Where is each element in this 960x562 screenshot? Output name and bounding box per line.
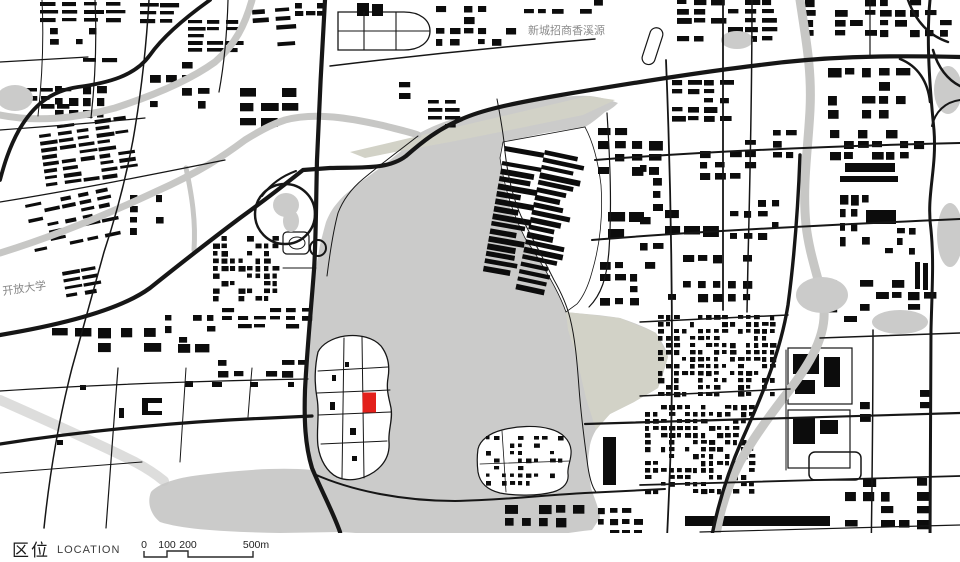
- building: [649, 141, 663, 151]
- building: [661, 405, 667, 409]
- building: [694, 18, 705, 23]
- building: [762, 350, 767, 354]
- building: [273, 281, 277, 286]
- building: [717, 426, 721, 430]
- building: [725, 426, 729, 430]
- building: [844, 152, 853, 159]
- building: [701, 454, 705, 458]
- building: [622, 508, 631, 513]
- building: [653, 461, 658, 465]
- building: [880, 30, 888, 37]
- building: [910, 0, 921, 5]
- building: [714, 329, 719, 333]
- building: [494, 466, 499, 469]
- building: [273, 236, 279, 241]
- building: [428, 116, 442, 120]
- building: [745, 9, 756, 14]
- building: [754, 336, 758, 341]
- building: [464, 6, 472, 13]
- building: [239, 259, 243, 263]
- building: [142, 398, 162, 403]
- building: [645, 412, 650, 417]
- building: [669, 426, 675, 431]
- building: [674, 343, 680, 347]
- building: [661, 447, 665, 452]
- building: [711, 18, 726, 24]
- building: [704, 116, 715, 122]
- building: [693, 468, 697, 473]
- building: [845, 520, 858, 527]
- building: [510, 444, 514, 449]
- building: [428, 108, 442, 112]
- building: [494, 459, 500, 463]
- building: [738, 357, 745, 361]
- building: [820, 420, 838, 434]
- building: [733, 405, 737, 410]
- building: [630, 298, 639, 305]
- building: [685, 475, 691, 479]
- building: [270, 308, 281, 312]
- building: [746, 329, 751, 333]
- building: [239, 266, 246, 272]
- building: [706, 329, 711, 333]
- building: [733, 489, 739, 494]
- building: [286, 316, 295, 320]
- building: [725, 461, 729, 465]
- building: [840, 209, 846, 217]
- building: [610, 508, 618, 513]
- scale-tick-label: 0: [141, 539, 147, 551]
- building: [428, 100, 439, 104]
- building: [494, 436, 500, 440]
- building: [436, 6, 446, 12]
- building: [749, 461, 755, 465]
- site-marker: [363, 393, 377, 413]
- building: [698, 281, 706, 288]
- building: [598, 141, 609, 149]
- pond: [796, 277, 848, 313]
- building: [264, 296, 268, 301]
- building: [722, 378, 727, 382]
- building: [666, 315, 670, 320]
- building: [730, 350, 737, 355]
- building: [770, 392, 775, 396]
- building: [845, 492, 856, 501]
- building: [693, 454, 699, 459]
- building: [693, 426, 698, 430]
- building: [130, 217, 137, 223]
- building: [674, 364, 680, 368]
- building: [615, 141, 626, 148]
- building: [615, 274, 626, 280]
- building: [264, 289, 270, 294]
- building: [252, 9, 265, 14]
- building: [558, 436, 564, 441]
- building: [917, 506, 930, 513]
- building: [510, 481, 515, 485]
- building: [685, 426, 691, 430]
- building: [698, 364, 704, 368]
- building: [786, 130, 797, 135]
- building: [256, 259, 261, 265]
- building: [62, 10, 77, 14]
- building: [266, 371, 277, 377]
- building: [160, 11, 174, 14]
- building: [897, 238, 903, 245]
- building: [701, 433, 705, 438]
- building: [505, 505, 518, 514]
- building: [188, 34, 204, 37]
- building: [720, 98, 729, 103]
- building: [658, 329, 664, 334]
- building: [160, 3, 179, 7]
- building: [713, 294, 723, 302]
- building: [52, 328, 68, 335]
- building: [879, 110, 889, 119]
- legend-title-en: LOCATION: [57, 540, 120, 556]
- building: [701, 440, 707, 444]
- building: [738, 385, 744, 390]
- building: [896, 68, 910, 75]
- building: [923, 263, 928, 290]
- building: [610, 519, 618, 525]
- building: [674, 336, 680, 341]
- building: [645, 468, 650, 473]
- building: [526, 474, 531, 478]
- building: [677, 36, 689, 41]
- plaza: [809, 452, 861, 480]
- building: [230, 259, 235, 264]
- building: [688, 107, 699, 113]
- building: [669, 433, 675, 438]
- building: [234, 371, 243, 376]
- building: [264, 244, 268, 249]
- building: [715, 173, 726, 180]
- building: [722, 322, 728, 327]
- building: [658, 315, 664, 319]
- building: [645, 426, 649, 431]
- building: [844, 141, 854, 149]
- building: [230, 266, 235, 271]
- building: [62, 18, 76, 21]
- building: [828, 110, 839, 119]
- building: [709, 468, 714, 473]
- building: [518, 474, 523, 478]
- building: [674, 378, 679, 383]
- building: [746, 357, 751, 361]
- building: [725, 440, 730, 444]
- building: [261, 103, 279, 111]
- building: [746, 378, 752, 382]
- building: [728, 294, 736, 302]
- building: [632, 141, 642, 149]
- map-legend: 区位 LOCATION: [12, 536, 120, 560]
- building: [762, 364, 767, 368]
- building: [238, 316, 248, 320]
- building: [730, 322, 735, 327]
- building: [653, 468, 658, 473]
- building: [717, 433, 723, 438]
- building: [717, 412, 722, 417]
- building: [538, 9, 546, 13]
- building: [722, 329, 728, 333]
- building: [286, 308, 296, 312]
- building: [677, 18, 692, 24]
- building: [672, 89, 682, 93]
- building: [372, 4, 383, 16]
- building: [478, 28, 486, 34]
- building: [603, 437, 616, 485]
- building: [709, 489, 714, 493]
- building: [188, 27, 206, 31]
- building: [332, 375, 336, 381]
- building: [188, 20, 202, 23]
- building: [98, 328, 111, 338]
- building: [880, 10, 892, 17]
- building: [762, 27, 777, 31]
- building: [256, 274, 261, 279]
- building: [288, 382, 294, 387]
- building: [746, 322, 751, 327]
- building: [701, 405, 705, 409]
- building: [741, 412, 746, 417]
- building: [730, 173, 741, 179]
- building: [762, 36, 772, 40]
- building: [770, 329, 775, 333]
- building: [770, 378, 775, 383]
- building: [741, 405, 747, 410]
- building: [84, 10, 104, 14]
- building: [714, 385, 721, 390]
- building: [805, 0, 815, 7]
- building: [885, 248, 893, 253]
- building: [908, 292, 920, 300]
- building: [677, 405, 682, 409]
- building: [622, 519, 630, 524]
- building: [286, 324, 299, 329]
- building: [862, 237, 870, 245]
- building: [653, 204, 663, 211]
- building: [840, 237, 846, 246]
- building: [598, 167, 609, 174]
- building: [661, 433, 668, 437]
- building: [674, 385, 679, 390]
- building: [486, 436, 490, 439]
- building: [698, 357, 704, 361]
- building: [399, 82, 410, 87]
- building: [240, 103, 253, 111]
- building: [835, 10, 848, 17]
- building: [573, 505, 584, 514]
- building: [682, 329, 687, 334]
- building: [106, 10, 125, 13]
- building: [436, 28, 444, 34]
- building: [717, 447, 723, 452]
- building: [690, 336, 695, 340]
- building: [207, 315, 213, 321]
- building: [222, 251, 229, 257]
- building: [754, 371, 758, 375]
- building: [886, 152, 894, 160]
- building: [282, 103, 298, 111]
- building: [97, 98, 104, 106]
- building: [698, 255, 707, 261]
- building: [653, 243, 664, 249]
- building: [685, 447, 689, 451]
- building: [106, 18, 121, 22]
- building: [615, 298, 623, 304]
- building: [746, 385, 750, 389]
- building: [845, 68, 854, 75]
- building: [881, 506, 893, 513]
- building: [239, 296, 245, 301]
- building: [840, 176, 898, 182]
- building: [770, 350, 774, 355]
- building: [295, 3, 302, 9]
- building: [709, 475, 713, 479]
- building: [238, 324, 252, 328]
- building: [207, 326, 215, 332]
- building: [858, 130, 867, 138]
- building: [828, 96, 837, 106]
- building: [478, 6, 486, 12]
- building: [717, 475, 722, 480]
- building: [666, 336, 671, 341]
- village-island: [477, 426, 571, 495]
- building: [653, 178, 662, 186]
- building: [940, 20, 952, 25]
- building: [222, 266, 229, 271]
- scale-tick-label: 100: [158, 539, 176, 551]
- building: [744, 211, 751, 218]
- building: [706, 343, 712, 347]
- building: [690, 343, 695, 347]
- building: [518, 451, 522, 455]
- building: [207, 20, 219, 24]
- building: [840, 195, 848, 205]
- site-location-map: 新城招商香溪源开放大学0100200500m 区位 LOCATION: [0, 0, 960, 562]
- building: [550, 474, 555, 479]
- building: [165, 315, 171, 321]
- building: [704, 98, 713, 102]
- building: [600, 298, 610, 306]
- building: [749, 405, 755, 409]
- building: [701, 412, 705, 417]
- building: [698, 336, 704, 340]
- building: [510, 474, 514, 477]
- building: [552, 9, 564, 14]
- building: [824, 357, 840, 387]
- building: [273, 266, 280, 271]
- building: [207, 27, 219, 30]
- building: [226, 20, 238, 24]
- building: [758, 211, 768, 216]
- building: [698, 329, 703, 333]
- building: [701, 468, 706, 473]
- building: [770, 322, 776, 327]
- building: [880, 0, 888, 6]
- building: [762, 18, 777, 23]
- building: [524, 9, 534, 13]
- building: [741, 475, 746, 480]
- building: [725, 433, 731, 438]
- building: [730, 371, 734, 375]
- building: [264, 274, 270, 280]
- building: [881, 492, 890, 502]
- building: [558, 459, 562, 463]
- building: [98, 343, 111, 352]
- building: [730, 233, 737, 239]
- building: [254, 316, 266, 319]
- building: [872, 152, 884, 160]
- building: [908, 304, 920, 310]
- building: [658, 357, 664, 361]
- building: [658, 378, 664, 383]
- building: [698, 371, 704, 376]
- building: [850, 20, 863, 26]
- building: [213, 266, 218, 271]
- building: [510, 451, 514, 454]
- building: [709, 412, 713, 416]
- building: [876, 292, 889, 299]
- building: [709, 426, 715, 431]
- building: [539, 518, 548, 526]
- building: [714, 378, 718, 382]
- map-label: 新城招商香溪源: [528, 23, 605, 37]
- building: [144, 328, 156, 337]
- building: [677, 475, 683, 479]
- building: [57, 104, 69, 109]
- building: [486, 451, 491, 456]
- building: [851, 209, 857, 217]
- building: [940, 30, 948, 37]
- building: [142, 403, 148, 411]
- building: [690, 364, 695, 369]
- building: [706, 336, 710, 340]
- building: [722, 364, 726, 368]
- building: [690, 322, 694, 327]
- building: [730, 357, 735, 362]
- building: [677, 9, 689, 15]
- building: [745, 18, 756, 22]
- building: [254, 324, 265, 327]
- building: [706, 371, 712, 376]
- building: [264, 251, 269, 256]
- building: [828, 68, 842, 78]
- building: [701, 461, 705, 466]
- building: [897, 228, 905, 233]
- building: [709, 454, 713, 459]
- building: [793, 418, 815, 444]
- building: [518, 459, 522, 463]
- building: [693, 489, 698, 493]
- building: [886, 130, 898, 138]
- building: [640, 217, 651, 224]
- building: [450, 28, 461, 34]
- building: [213, 251, 218, 256]
- building: [270, 316, 280, 319]
- building: [630, 274, 637, 282]
- building: [701, 489, 707, 494]
- building: [542, 436, 548, 440]
- pond: [283, 210, 299, 232]
- building: [661, 426, 667, 430]
- building: [666, 322, 670, 326]
- building: [57, 440, 63, 445]
- building: [436, 39, 442, 46]
- building: [179, 337, 187, 343]
- building: [658, 336, 663, 341]
